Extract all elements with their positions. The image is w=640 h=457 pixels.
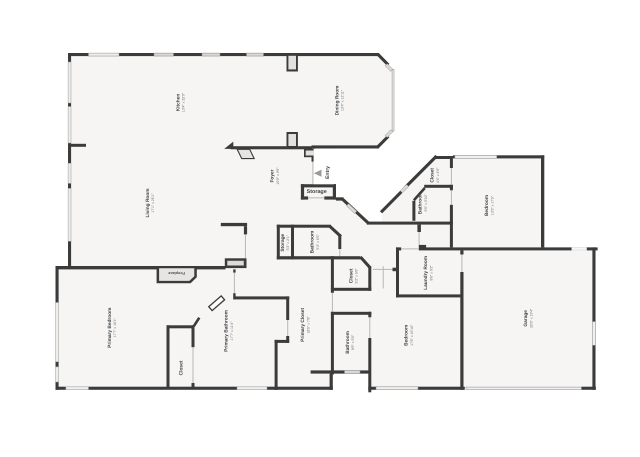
svg-text:6'5" x 9'10": 6'5" x 9'10" xyxy=(424,194,428,212)
svg-text:17'6" x 16'10": 17'6" x 16'10" xyxy=(410,324,414,346)
svg-text:Bathroom: Bathroom xyxy=(345,331,351,354)
svg-text:13'4" x 32'9": 13'4" x 32'9" xyxy=(182,92,186,112)
svg-text:20'6" x 19'4": 20'6" x 19'4" xyxy=(529,308,533,328)
svg-text:Closet: Closet xyxy=(179,360,185,375)
svg-text:Storage: Storage xyxy=(307,189,327,195)
svg-text:Living Room: Living Room xyxy=(145,188,151,217)
svg-text:5'3" x 6'5": 5'3" x 6'5" xyxy=(316,234,320,250)
svg-text:Bathroom: Bathroom xyxy=(310,231,316,254)
svg-text:17'1" x 25'1": 17'1" x 25'1" xyxy=(151,193,155,213)
svg-text:Bedroom: Bedroom xyxy=(404,325,410,346)
svg-text:5'3" x 5'6": 5'3" x 5'6" xyxy=(355,267,359,283)
svg-text:Laundry Room: Laundry Room xyxy=(423,256,429,290)
svg-text:Primary Closet: Primary Closet xyxy=(300,308,306,342)
svg-text:17'7" x 11'4": 17'7" x 11'4" xyxy=(230,321,234,341)
svg-text:Primary Bathroom: Primary Bathroom xyxy=(224,310,230,352)
svg-text:8'6" x 9'2": 8'6" x 9'2" xyxy=(430,264,434,280)
svg-text:Kitchen: Kitchen xyxy=(175,94,181,112)
svg-text:8'9" x 5'5": 8'9" x 5'5" xyxy=(351,334,355,350)
svg-text:4'4" x 4'9": 4'4" x 4'9" xyxy=(436,167,440,183)
svg-text:10'9" x 9'9": 10'9" x 9'9" xyxy=(276,167,280,185)
svg-text:Closet: Closet xyxy=(348,268,354,283)
svg-text:Primary Bedroom: Primary Bedroom xyxy=(107,308,113,348)
svg-text:13'4" x 12'11": 13'4" x 12'11" xyxy=(341,89,345,111)
svg-text:Foyer: Foyer xyxy=(270,169,276,182)
svg-text:Closet: Closet xyxy=(429,168,435,183)
svg-text:Storage: Storage xyxy=(280,233,286,251)
svg-text:18'5" x 7'8": 18'5" x 7'8" xyxy=(307,316,311,334)
svg-text:13'3" x 17'5": 13'3" x 17'5" xyxy=(490,195,494,215)
svg-text:Garage: Garage xyxy=(523,310,529,327)
svg-text:5'3" x 2'1": 5'3" x 2'1" xyxy=(286,234,290,250)
svg-text:Fireplace: Fireplace xyxy=(168,271,185,275)
svg-text:Bathroom: Bathroom xyxy=(417,192,423,215)
svg-text:17'7" x 16'1": 17'7" x 16'1" xyxy=(113,317,117,337)
svg-text:Entry: Entry xyxy=(325,166,331,179)
svg-text:Bedroom: Bedroom xyxy=(484,195,490,216)
svg-text:Dining Room: Dining Room xyxy=(334,86,340,116)
